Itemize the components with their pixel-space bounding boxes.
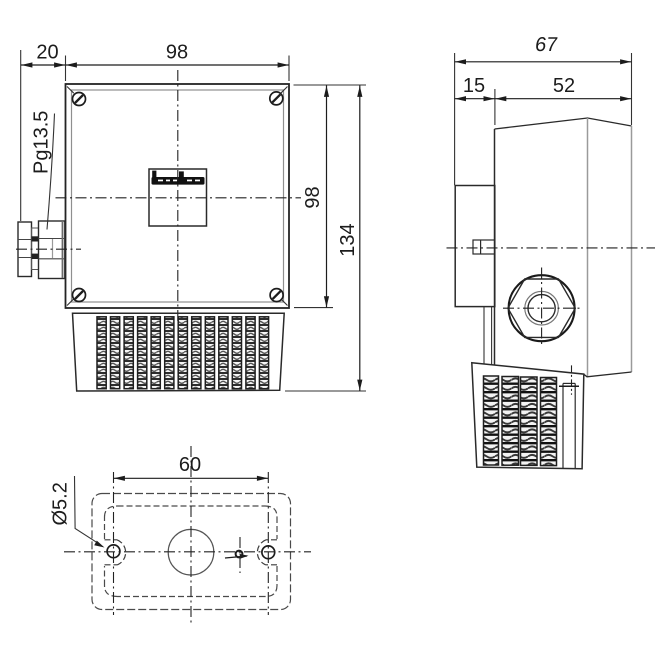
svg-text:20: 20: [36, 42, 58, 64]
svg-text:134: 134: [337, 223, 359, 256]
svg-text:Ø5.2: Ø5.2: [50, 482, 72, 525]
svg-text:98: 98: [302, 186, 324, 208]
svg-text:98: 98: [166, 42, 188, 64]
svg-text:Pg13.5: Pg13.5: [31, 111, 53, 174]
svg-text:52: 52: [553, 75, 575, 97]
svg-text:60: 60: [179, 454, 201, 476]
svg-text:67: 67: [534, 34, 559, 56]
svg-text:15: 15: [463, 75, 485, 97]
